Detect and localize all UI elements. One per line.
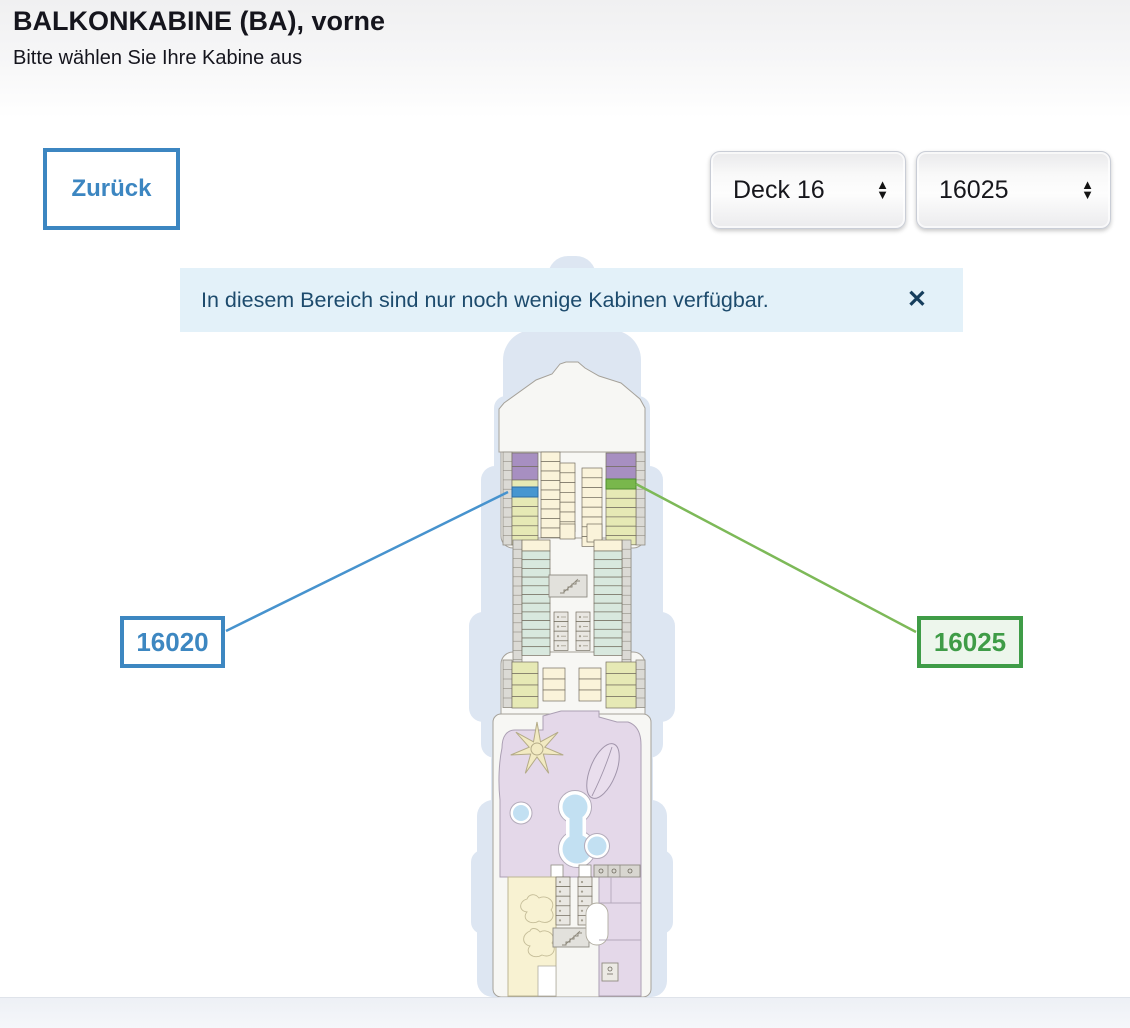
deck-select-value: Deck 16 [733, 176, 825, 205]
cabin-label-16020[interactable]: 16020 [120, 616, 225, 668]
cabin-label-16025[interactable]: 16025 [917, 616, 1023, 668]
close-icon[interactable]: ✕ [907, 288, 927, 312]
cabin-select[interactable]: 16025 ▲ ▼ [916, 151, 1111, 229]
availability-banner: In diesem Bereich sind nur noch wenige K… [180, 268, 963, 332]
select-arrows-icon: ▲ ▼ [1081, 180, 1094, 200]
leader-line-16020 [226, 492, 508, 631]
front-cabin-section [503, 452, 645, 546]
banner-text: In diesem Bereich sind nur noch wenige K… [201, 288, 769, 313]
back-button[interactable]: Zurück [43, 148, 180, 230]
page-subtitle: Bitte wählen Sie Ihre Kabine aus [13, 47, 302, 70]
deck-select[interactable]: Deck 16 ▲ ▼ [710, 151, 906, 229]
footer-band [0, 997, 1130, 1028]
cabin-select-value: 16025 [939, 176, 1009, 205]
cabin-16020[interactable] [512, 487, 538, 497]
select-arrows-icon: ▲ ▼ [876, 180, 889, 200]
cabin-16025[interactable] [606, 479, 636, 489]
leader-line-16025 [636, 484, 916, 632]
page-title: BALKONKABINE (BA), vorne [13, 6, 385, 37]
arrow-down-icon: ▼ [876, 190, 889, 200]
arrow-down-icon: ▼ [1081, 190, 1094, 200]
